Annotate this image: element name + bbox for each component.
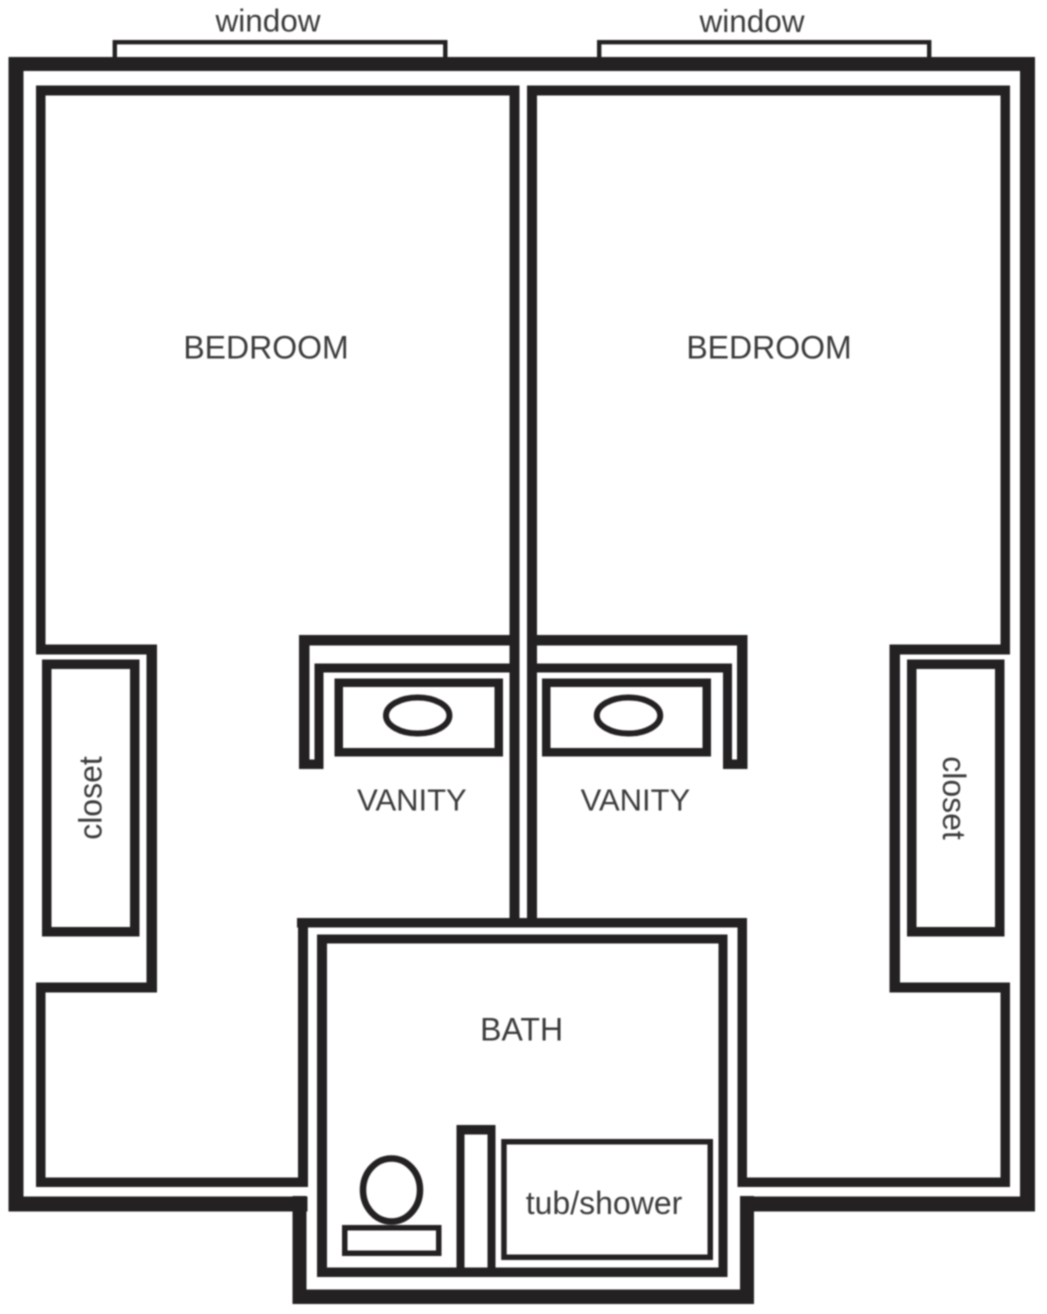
svg-text:closet: closet [936, 756, 972, 840]
svg-text:BEDROOM: BEDROOM [183, 330, 348, 366]
svg-text:tub/shower: tub/shower [526, 1185, 683, 1221]
svg-text:VANITY: VANITY [581, 783, 691, 818]
svg-text:VANITY: VANITY [357, 783, 467, 818]
svg-text:BEDROOM: BEDROOM [686, 330, 851, 366]
svg-text:window: window [214, 3, 320, 39]
svg-text:BATH: BATH [480, 1012, 563, 1048]
svg-text:closet: closet [73, 756, 109, 840]
svg-text:window: window [698, 3, 804, 39]
